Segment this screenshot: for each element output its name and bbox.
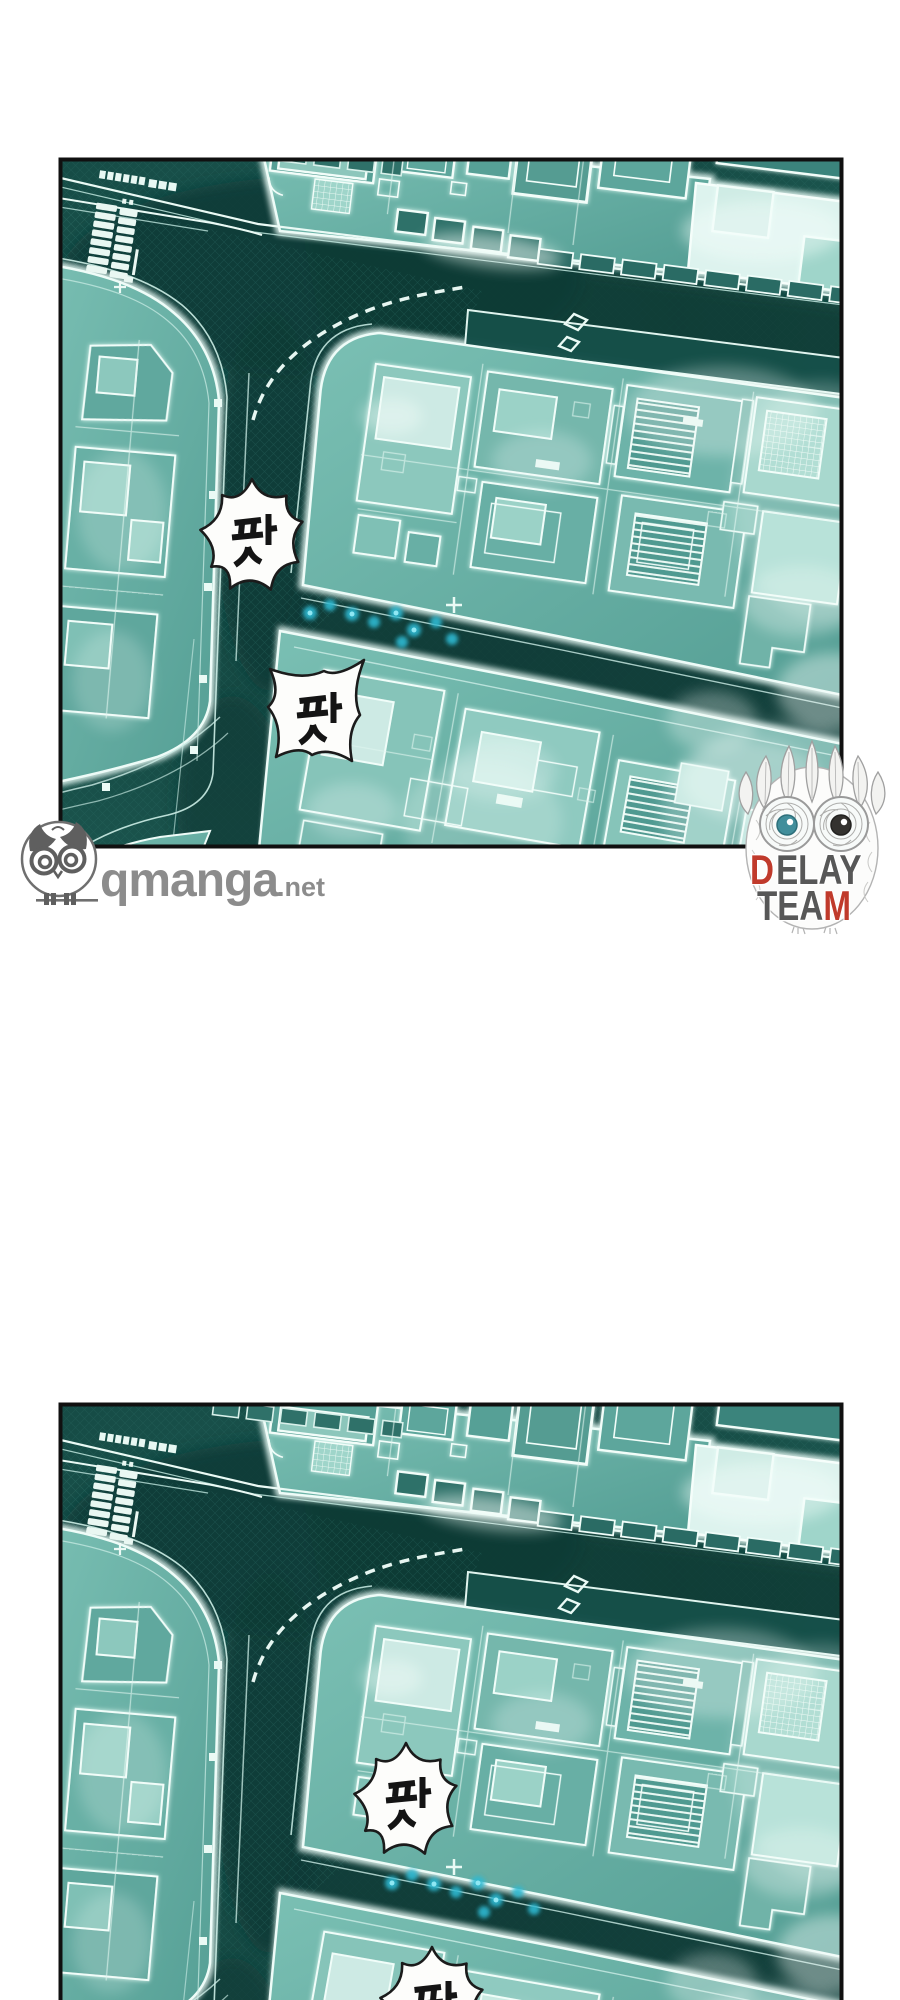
svg-text:qmanga: qmanga [100,854,279,907]
svg-text:M: M [823,883,851,930]
svg-text:TEA: TEA [757,883,823,930]
svg-text:.net: .net [277,872,325,902]
